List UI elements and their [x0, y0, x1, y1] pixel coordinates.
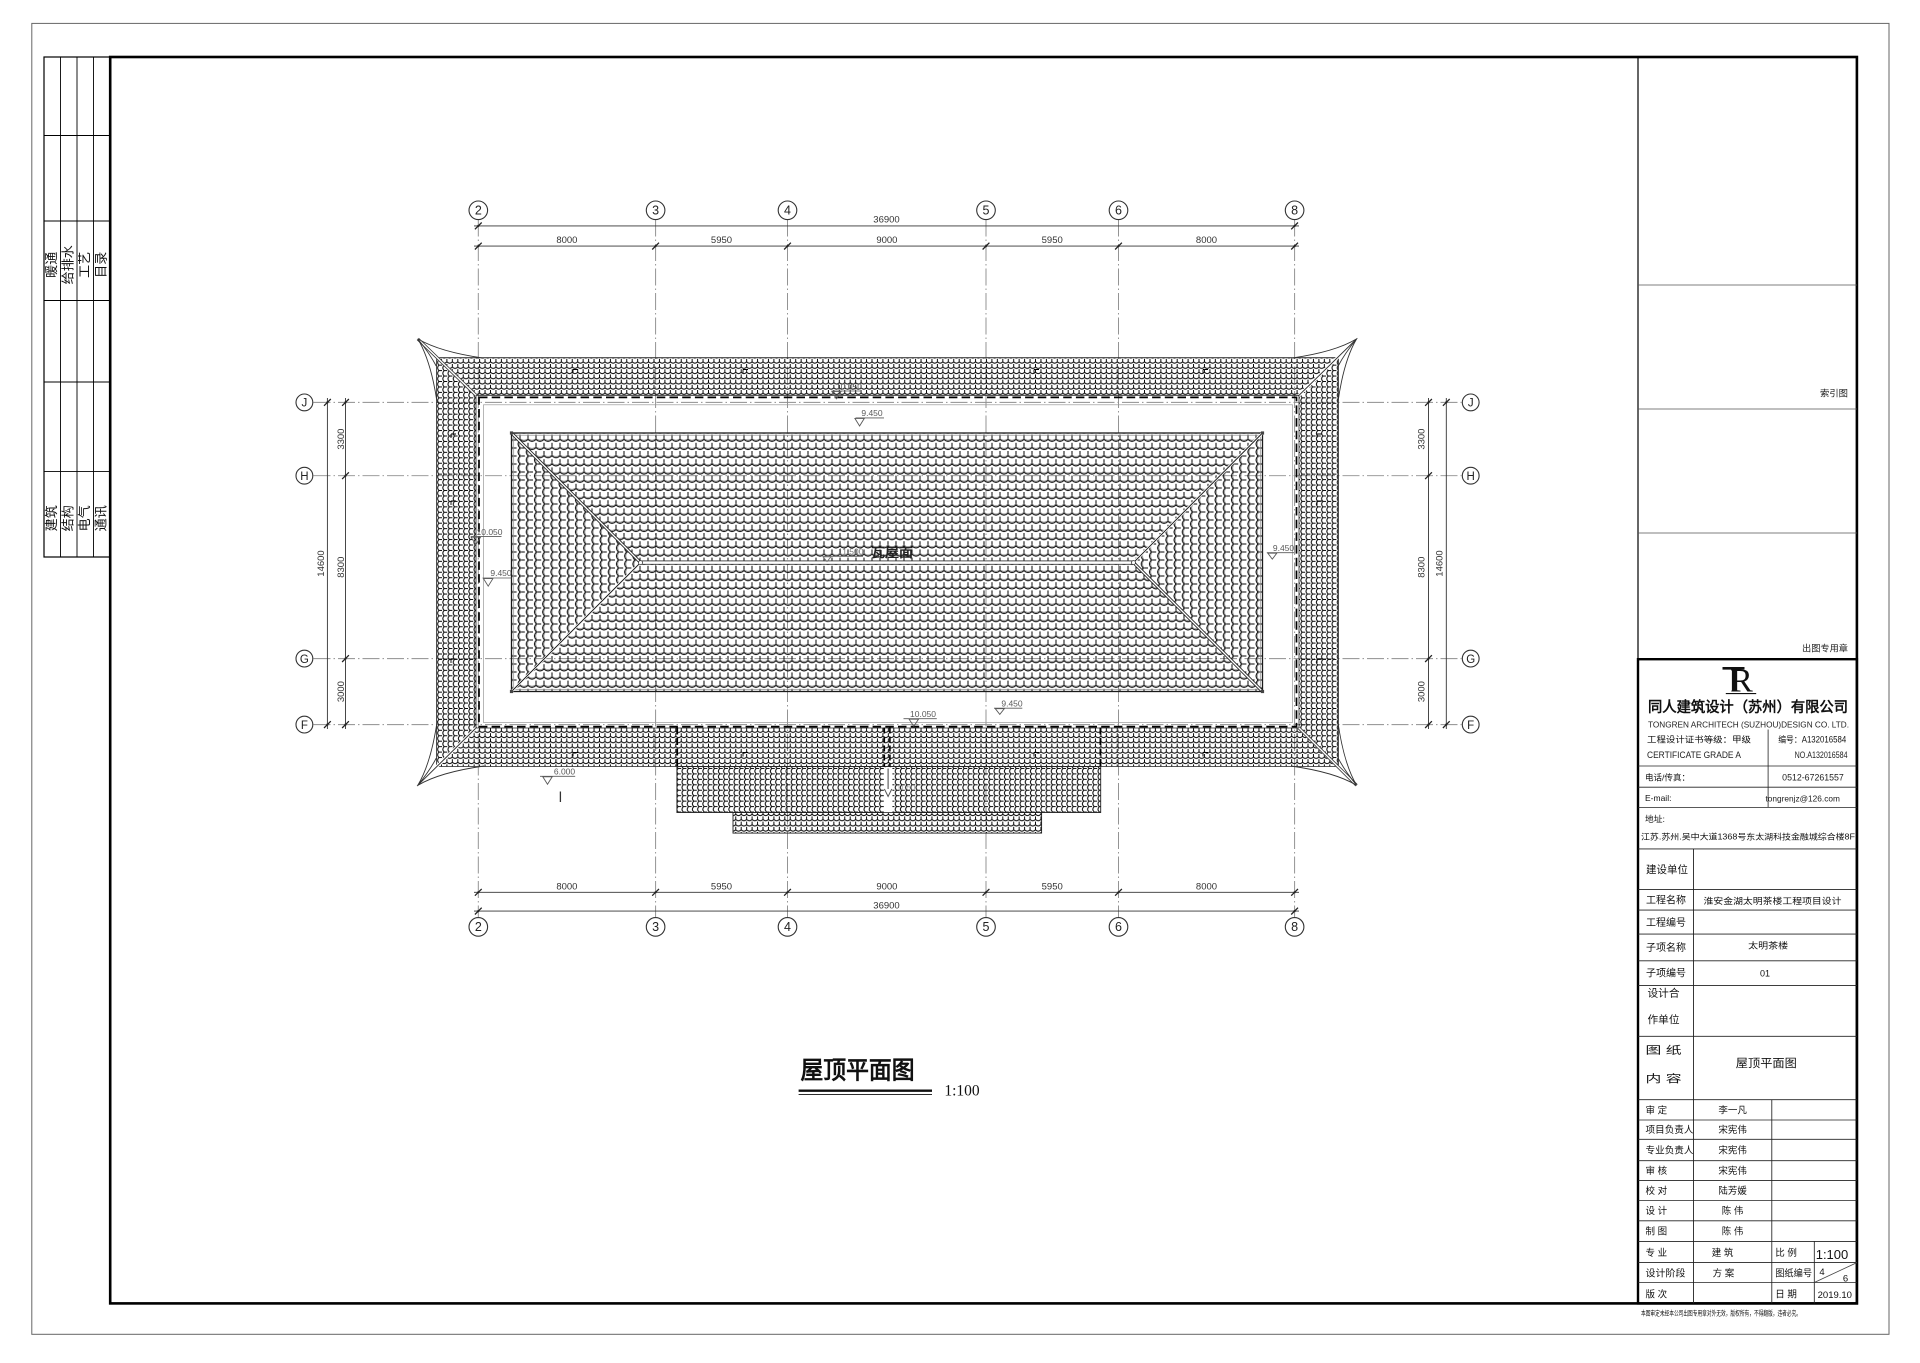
svg-text:太明茶楼: 太明茶楼 [1748, 940, 1788, 951]
svg-text:子项编号: 子项编号 [1646, 967, 1686, 980]
svg-text:宋宪伟: 宋宪伟 [1718, 1144, 1747, 1156]
svg-text:同人建筑设计（苏州）有限公司: 同人建筑设计（苏州）有限公司 [1648, 698, 1848, 716]
svg-text:01: 01 [1760, 969, 1770, 979]
svg-text:工程名称: 工程名称 [1646, 894, 1686, 907]
svg-text:5950: 5950 [1042, 235, 1063, 246]
svg-text:淮安金湖太明茶楼工程项目设计: 淮安金湖太明茶楼工程项目设计 [1704, 895, 1842, 906]
svg-text:2: 2 [475, 204, 482, 218]
svg-text:瓦屋面: 瓦屋面 [871, 545, 914, 560]
svg-text:8000: 8000 [556, 881, 577, 892]
svg-text:J: J [302, 398, 308, 410]
svg-text:14600: 14600 [316, 550, 327, 576]
svg-text:5950: 5950 [711, 235, 732, 246]
svg-text:屋顶平面图: 屋顶平面图 [1736, 1057, 1797, 1070]
svg-text:设计合: 设计合 [1648, 987, 1681, 1000]
svg-text:5: 5 [983, 204, 990, 218]
svg-text:日 期: 日 期 [1775, 1290, 1797, 1301]
svg-text:8000: 8000 [556, 235, 577, 246]
svg-text:3300: 3300 [1417, 429, 1428, 450]
svg-text:陈 伟: 陈 伟 [1722, 1205, 1744, 1217]
svg-text:8300: 8300 [1417, 557, 1428, 578]
svg-text:3000: 3000 [336, 681, 347, 702]
svg-text:目录: 目录 [94, 252, 109, 278]
svg-text:10.050: 10.050 [910, 709, 936, 719]
svg-text:校 对: 校 对 [1646, 1185, 1668, 1197]
svg-text:2019.10: 2019.10 [1818, 1290, 1852, 1301]
svg-text:项目负责人: 项目负责人 [1646, 1124, 1694, 1136]
svg-text:3: 3 [652, 920, 659, 934]
svg-text:宋宪伟: 宋宪伟 [1718, 1124, 1747, 1136]
svg-text:索引图: 索引图 [1820, 388, 1848, 399]
svg-text:9.450: 9.450 [861, 408, 883, 418]
svg-text:0512-67261557: 0512-67261557 [1782, 772, 1844, 782]
svg-text:李一凡: 李一凡 [1718, 1104, 1747, 1116]
svg-text:通讯: 通讯 [94, 505, 109, 531]
svg-text:专业负责人: 专业负责人 [1646, 1144, 1694, 1156]
svg-text:11.500: 11.500 [838, 547, 864, 557]
svg-text:CERTIFICATE GRADE A: CERTIFICATE GRADE A [1647, 750, 1741, 760]
svg-text:审 定: 审 定 [1646, 1104, 1668, 1116]
svg-text:作单位: 作单位 [1648, 1013, 1681, 1026]
svg-text:10.050: 10.050 [477, 527, 503, 537]
svg-text:9000: 9000 [876, 235, 897, 246]
svg-text:暖通: 暖通 [44, 252, 59, 278]
svg-text:工程设计证书等级：甲级: 工程设计证书等级：甲级 [1647, 733, 1751, 744]
svg-text:14600: 14600 [1435, 550, 1446, 576]
svg-text:设计阶段: 设计阶段 [1646, 1268, 1687, 1280]
svg-text:J: J [1468, 398, 1474, 410]
svg-text:9000: 9000 [876, 881, 897, 892]
svg-text:图 纸: 图 纸 [1646, 1044, 1683, 1057]
svg-text:建 筑: 建 筑 [1712, 1247, 1734, 1259]
svg-text:H: H [1467, 471, 1475, 483]
svg-text:地址:: 地址: [1645, 814, 1665, 824]
svg-text:工程编号: 工程编号 [1646, 916, 1686, 929]
svg-text:E-mail:: E-mail: [1645, 793, 1671, 803]
svg-text:F: F [1467, 720, 1474, 732]
svg-text:6.000: 6.000 [554, 767, 576, 777]
svg-text:6: 6 [1843, 1274, 1848, 1285]
svg-text:宋宪伟: 宋宪伟 [1718, 1165, 1747, 1177]
svg-text:出图专用章: 出图专用章 [1802, 643, 1848, 654]
svg-text:8000: 8000 [1196, 881, 1217, 892]
svg-text:G: G [300, 654, 309, 666]
svg-text:5950: 5950 [1042, 881, 1063, 892]
svg-text:江苏.苏州.吴中大道1368号东太湖科技金融城综合楼8F: 江苏.苏州.吴中大道1368号东太湖科技金融城综合楼8F [1641, 832, 1855, 842]
svg-text:设 计: 设 计 [1646, 1205, 1668, 1217]
svg-text:10.050: 10.050 [836, 382, 862, 392]
svg-text:6: 6 [1115, 204, 1122, 218]
svg-text:子项名称: 子项名称 [1646, 941, 1686, 954]
svg-text:4: 4 [784, 920, 791, 934]
svg-text:陆芳媛: 陆芳媛 [1718, 1185, 1747, 1197]
svg-text:方 案: 方 案 [1713, 1268, 1735, 1280]
svg-text:36900: 36900 [873, 215, 899, 226]
svg-text:9.450: 9.450 [1001, 699, 1023, 709]
svg-text:屋顶平面图: 屋顶平面图 [801, 1058, 915, 1085]
svg-text:H: H [300, 471, 308, 483]
svg-text:8: 8 [1291, 920, 1298, 934]
svg-text:建筑: 建筑 [44, 505, 59, 531]
svg-text:8: 8 [1291, 204, 1298, 218]
svg-text:陈 伟: 陈 伟 [1722, 1226, 1744, 1238]
svg-text:电气: 电气 [77, 505, 92, 531]
svg-text:8000: 8000 [1196, 235, 1217, 246]
svg-text:1:100: 1:100 [944, 1083, 980, 1100]
svg-text:1:100: 1:100 [1816, 1247, 1849, 1262]
svg-text:给排水: 给排水 [61, 245, 76, 284]
svg-text:36900: 36900 [873, 900, 899, 911]
svg-text:电话/传真：: 电话/传真： [1645, 772, 1690, 782]
svg-text:NO.A132016584: NO.A132016584 [1795, 750, 1848, 760]
svg-text:3000: 3000 [1417, 681, 1428, 702]
svg-text:内 容: 内 容 [1646, 1072, 1683, 1085]
svg-text:建设单位: 建设单位 [1646, 863, 1688, 876]
svg-text:8300: 8300 [336, 557, 347, 578]
svg-text:专 业: 专 业 [1646, 1247, 1668, 1259]
svg-text:比 例: 比 例 [1775, 1247, 1797, 1259]
svg-text:制 图: 制 图 [1646, 1226, 1668, 1238]
svg-text:4: 4 [784, 204, 791, 218]
svg-text:9.450: 9.450 [1273, 543, 1295, 553]
svg-text:3300: 3300 [336, 429, 347, 450]
svg-text:本图审定未经本公司出图专用章对外无效，版权所有，不得翻版，违: 本图审定未经本公司出图专用章对外无效，版权所有，不得翻版，违者必究。 [1641, 1309, 1801, 1318]
svg-text:编号：A132016584: 编号：A132016584 [1778, 733, 1846, 744]
svg-text:3: 3 [652, 204, 659, 218]
svg-text:版 次: 版 次 [1646, 1289, 1668, 1301]
svg-text:审 核: 审 核 [1646, 1165, 1668, 1177]
svg-text:11.50: 11.50 [897, 783, 915, 792]
svg-text:tongrenjz@126.com: tongrenjz@126.com [1766, 793, 1840, 803]
svg-text:F: F [301, 720, 308, 732]
svg-text:9.450: 9.450 [490, 568, 512, 578]
svg-text:6: 6 [1115, 920, 1122, 934]
svg-text:结构: 结构 [61, 505, 76, 531]
svg-text:工艺: 工艺 [77, 252, 92, 278]
svg-text:2: 2 [475, 920, 482, 934]
svg-text:5: 5 [983, 920, 990, 934]
svg-text:G: G [1466, 654, 1475, 666]
svg-text:5950: 5950 [711, 881, 732, 892]
svg-text:TONGREN ARCHITECH (SUZHOU)DESI: TONGREN ARCHITECH (SUZHOU)DESIGN CO. LTD… [1648, 719, 1849, 729]
svg-text:4: 4 [1819, 1267, 1824, 1278]
svg-text:图纸编号: 图纸编号 [1775, 1268, 1812, 1280]
